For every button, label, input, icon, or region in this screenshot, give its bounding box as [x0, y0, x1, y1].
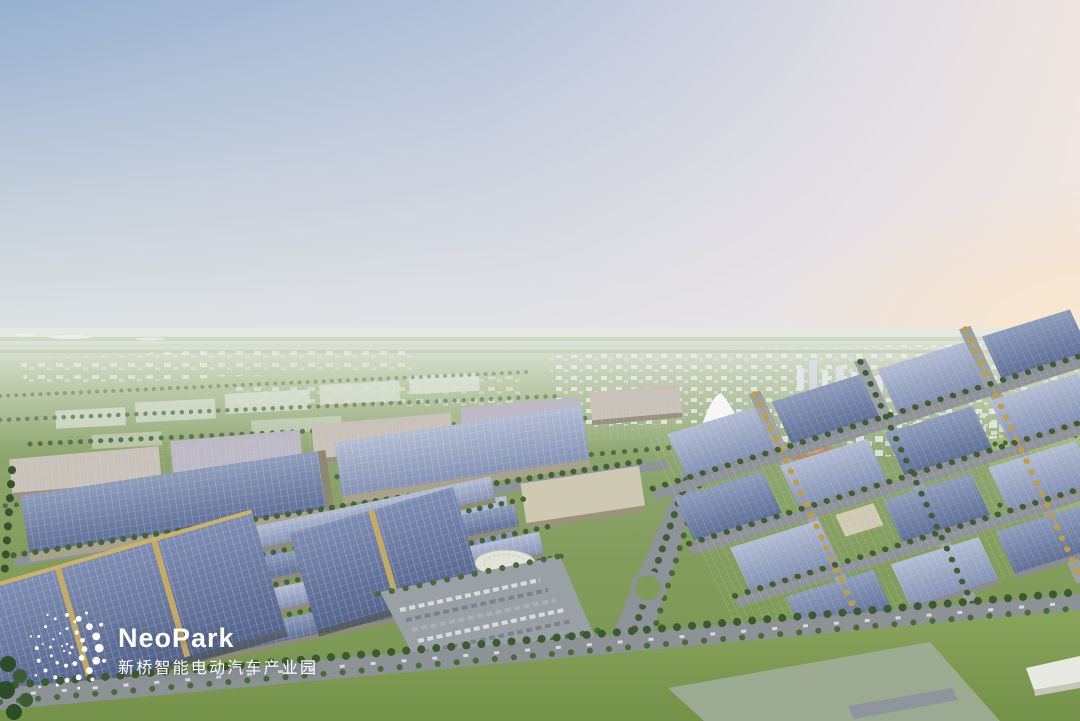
brand-subtitle-zh: 新桥智能电动汽车产业园 [118, 661, 318, 677]
brand-name: NeoPark [118, 625, 318, 652]
brand-text: NeoPark 新桥智能电动汽车产业园 [118, 625, 318, 677]
neopark-logo-icon [28, 607, 106, 695]
neopark-aerial-render: NeoPark 新桥智能电动汽车产业园 [0, 0, 1080, 721]
brand-lockup: NeoPark 新桥智能电动汽车产业园 [28, 607, 318, 695]
roundabout [633, 573, 663, 603]
